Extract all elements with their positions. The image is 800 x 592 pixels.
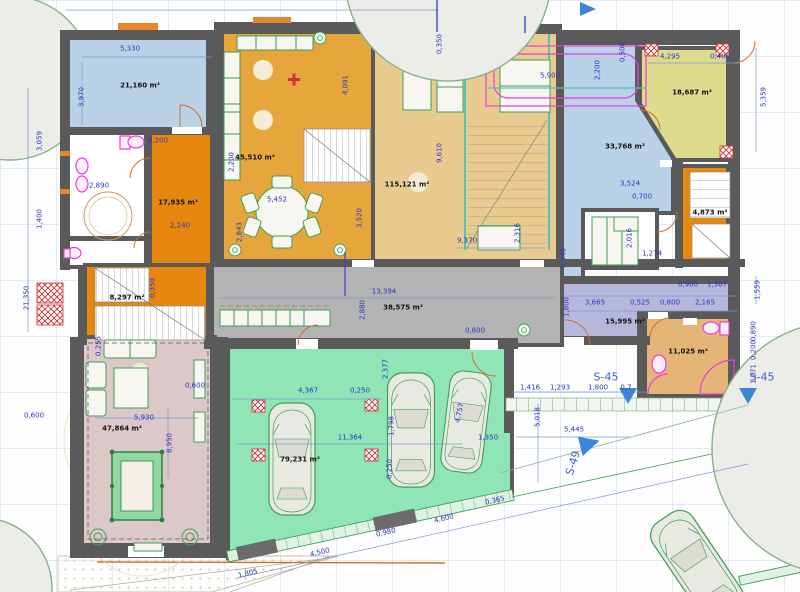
room-orange-left	[150, 133, 212, 265]
plant-marker	[229, 244, 241, 256]
room-corridor	[212, 265, 562, 345]
stairs-right	[690, 172, 730, 258]
car-garage-1	[269, 403, 315, 515]
section-line-s49	[500, 405, 748, 473]
tree-bottom-left	[0, 518, 52, 592]
floor-plan-canvas: 5,3303,9700,2002,8903,0591,40021,3502,20…	[0, 0, 800, 592]
car-garage-2	[388, 373, 435, 487]
section-arrow-top	[580, 2, 596, 16]
wardrobe-closet	[592, 217, 638, 265]
floor-plan-drawing	[0, 0, 800, 592]
walkway	[506, 398, 738, 411]
section-arrow-s49	[578, 432, 602, 456]
room-bedroom-top-left	[66, 36, 212, 129]
plant-marker	[314, 32, 326, 44]
site-boundary-line	[97, 562, 445, 563]
plant-marker	[334, 244, 346, 256]
plant-marker	[518, 324, 530, 336]
stairs-dining	[304, 129, 370, 182]
